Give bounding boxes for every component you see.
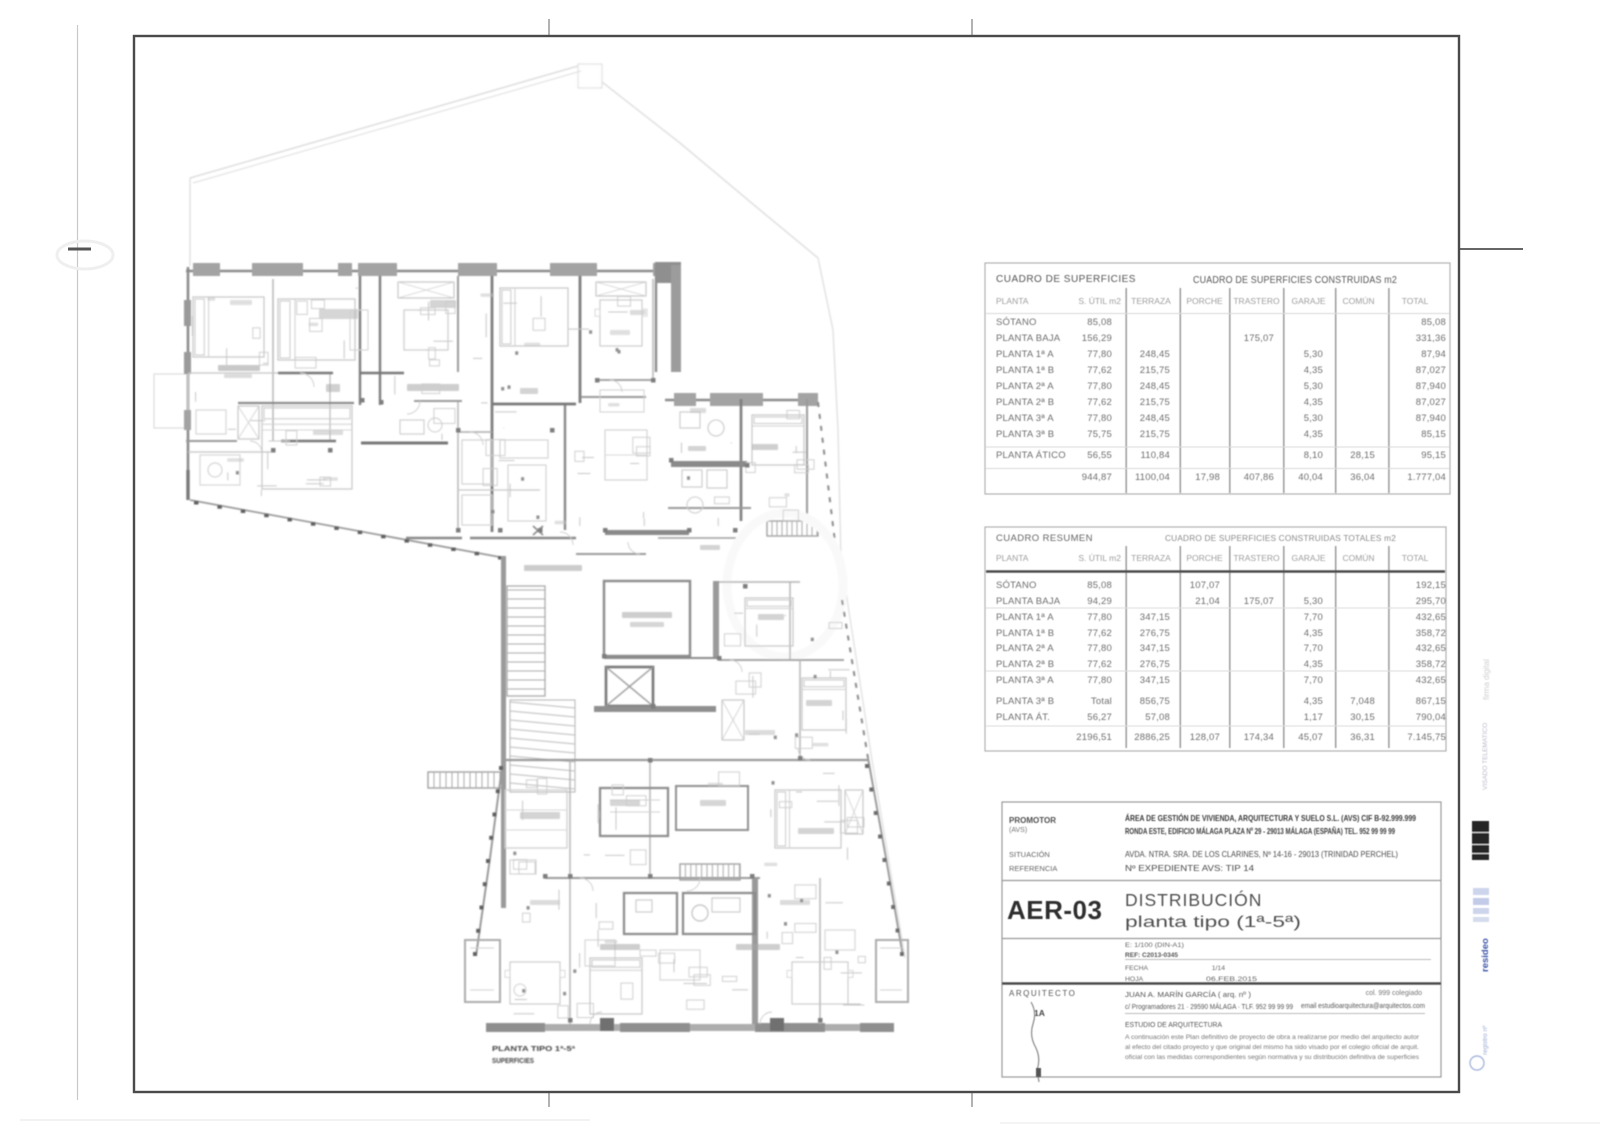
svg-text:ÁREA DE GESTIÓN DE VIVIENDA, A: ÁREA DE GESTIÓN DE VIVIENDA, ARQUITECTUR… xyxy=(1125,812,1416,823)
svg-text:VISADO TELEMATICO: VISADO TELEMATICO xyxy=(1482,723,1489,790)
svg-text:856,75: 856,75 xyxy=(1140,696,1170,707)
svg-text:192,15: 192,15 xyxy=(1416,580,1446,591)
svg-text:PLANTA 2ª A: PLANTA 2ª A xyxy=(996,643,1054,654)
svg-text:347,15: 347,15 xyxy=(1140,612,1170,623)
svg-text:87,940: 87,940 xyxy=(1416,381,1446,392)
svg-text:E: 1/100 (DIN-A1): E: 1/100 (DIN-A1) xyxy=(1125,942,1184,949)
svg-text:358,72: 358,72 xyxy=(1416,628,1446,639)
svg-text:867,15: 867,15 xyxy=(1416,696,1446,707)
svg-text:COMÚN: COMÚN xyxy=(1342,553,1374,563)
svg-text:77,80: 77,80 xyxy=(1087,349,1112,360)
svg-text:TERRAZA: TERRAZA xyxy=(1131,296,1171,306)
svg-text:col. 999 colegiado: col. 999 colegiado xyxy=(1366,990,1423,997)
svg-text:215,75: 215,75 xyxy=(1140,365,1170,376)
svg-text:FECHA: FECHA xyxy=(1125,965,1149,972)
svg-text:PLANTA 2ª A: PLANTA 2ª A xyxy=(996,381,1054,392)
svg-text:Nº EXPEDIENTE AVS: TIP 14: Nº EXPEDIENTE AVS: TIP 14 xyxy=(1125,864,1255,873)
svg-text:248,45: 248,45 xyxy=(1140,381,1170,392)
svg-text:PLANTA TIPO 1ª-5ª: PLANTA TIPO 1ª-5ª xyxy=(492,1044,575,1053)
svg-text:87,027: 87,027 xyxy=(1416,397,1446,408)
svg-text:5,30: 5,30 xyxy=(1304,381,1323,392)
svg-text:SÓTANO: SÓTANO xyxy=(996,317,1037,328)
svg-text:Total: Total xyxy=(1091,696,1112,707)
svg-text:77,80: 77,80 xyxy=(1087,675,1112,686)
svg-text:7,70: 7,70 xyxy=(1304,675,1323,686)
svg-text:REF: C2013-0345: REF: C2013-0345 xyxy=(1125,952,1178,959)
svg-text:87,940: 87,940 xyxy=(1416,413,1446,424)
svg-text:planta tipo (1ª-5ª): planta tipo (1ª-5ª) xyxy=(1125,914,1301,931)
svg-text:40,04: 40,04 xyxy=(1298,472,1323,483)
svg-text:95,15: 95,15 xyxy=(1421,450,1446,461)
svg-text:CUADRO DE SUPERFICIES: CUADRO DE SUPERFICIES xyxy=(996,274,1136,285)
svg-text:87,027: 87,027 xyxy=(1416,365,1446,376)
svg-text:215,75: 215,75 xyxy=(1140,397,1170,408)
svg-text:7,70: 7,70 xyxy=(1304,612,1323,623)
svg-text:77,62: 77,62 xyxy=(1087,397,1112,408)
svg-text:PLANTA ÁT.: PLANTA ÁT. xyxy=(996,712,1050,723)
svg-text:PLANTA BAJA: PLANTA BAJA xyxy=(996,596,1061,607)
svg-text:2886,25: 2886,25 xyxy=(1134,732,1170,743)
svg-text:REFERENCIA: REFERENCIA xyxy=(1009,864,1057,873)
svg-text:PLANTA BAJA: PLANTA BAJA xyxy=(996,333,1061,344)
svg-text:S. ÚTIL m2: S. ÚTIL m2 xyxy=(1078,296,1121,306)
svg-text:57,08: 57,08 xyxy=(1145,712,1170,723)
svg-text:PORCHE: PORCHE xyxy=(1186,553,1223,563)
svg-text:al efecto del citado proyecto: al efecto del citado proyecto y que orig… xyxy=(1125,1044,1419,1051)
svg-text:S. ÚTIL m2: S. ÚTIL m2 xyxy=(1078,553,1121,563)
svg-text:87,94: 87,94 xyxy=(1421,349,1446,360)
svg-text:30,15: 30,15 xyxy=(1350,712,1375,723)
svg-text:(AVS): (AVS) xyxy=(1009,827,1027,834)
svg-text:295,70: 295,70 xyxy=(1416,596,1446,607)
svg-text:215,75: 215,75 xyxy=(1140,429,1170,440)
svg-text:331,36: 331,36 xyxy=(1416,333,1446,344)
svg-text:GARAJE: GARAJE xyxy=(1291,553,1325,563)
svg-text:A continuación este Plan defin: A continuación este Plan definitivo de p… xyxy=(1125,1034,1420,1041)
svg-text:AVDA. NTRA. SRA. DE LOS CLARIN: AVDA. NTRA. SRA. DE LOS CLARINES, Nº 14-… xyxy=(1125,850,1398,859)
svg-text:RONDA ESTE, EDIFICIO MÁLAGA PL: RONDA ESTE, EDIFICIO MÁLAGA PLAZA Nº 29 … xyxy=(1125,826,1395,836)
svg-text:TERRAZA: TERRAZA xyxy=(1131,553,1171,563)
svg-text:PLANTA 1ª B: PLANTA 1ª B xyxy=(996,628,1054,639)
svg-text:175,07: 175,07 xyxy=(1244,596,1274,607)
svg-text:PROMOTOR: PROMOTOR xyxy=(1009,816,1056,825)
svg-text:174,34: 174,34 xyxy=(1244,732,1274,743)
svg-text:1100,04: 1100,04 xyxy=(1135,472,1170,483)
svg-text:944,87: 944,87 xyxy=(1082,472,1112,483)
svg-text:4,35: 4,35 xyxy=(1304,397,1323,408)
svg-text:4,35: 4,35 xyxy=(1304,365,1323,376)
svg-text:5,30: 5,30 xyxy=(1304,596,1323,607)
svg-text:SUPERFICIES: SUPERFICIES xyxy=(492,1058,534,1065)
svg-text:7,70: 7,70 xyxy=(1304,643,1323,654)
svg-text:156,29: 156,29 xyxy=(1082,333,1112,344)
svg-text:PLANTA 2ª B: PLANTA 2ª B xyxy=(996,659,1054,670)
svg-text:128,07: 128,07 xyxy=(1190,732,1220,743)
svg-text:77,80: 77,80 xyxy=(1087,381,1112,392)
svg-text:432,65: 432,65 xyxy=(1416,675,1446,686)
svg-text:248,45: 248,45 xyxy=(1140,413,1170,424)
svg-text:45,07: 45,07 xyxy=(1298,732,1323,743)
svg-text:COMÚN: COMÚN xyxy=(1342,296,1374,306)
svg-text:PLANTA ÁTICO: PLANTA ÁTICO xyxy=(996,450,1066,461)
svg-text:85,08: 85,08 xyxy=(1087,580,1112,591)
svg-text:SITUACIÓN: SITUACIÓN xyxy=(1009,850,1050,859)
svg-text:36,31: 36,31 xyxy=(1350,732,1375,743)
svg-text:1/14: 1/14 xyxy=(1212,965,1225,972)
svg-text:ARQUITECTO: ARQUITECTO xyxy=(1009,989,1076,998)
svg-text:28,15: 28,15 xyxy=(1350,450,1375,461)
svg-text:PLANTA 3ª B: PLANTA 3ª B xyxy=(996,429,1054,440)
svg-text:347,15: 347,15 xyxy=(1140,675,1170,686)
svg-text:248,45: 248,45 xyxy=(1140,349,1170,360)
svg-text:5,30: 5,30 xyxy=(1304,413,1323,424)
svg-text:ESTUDIO DE ARQUITECTURA: ESTUDIO DE ARQUITECTURA xyxy=(1125,1020,1222,1029)
svg-text:email estudioarquitectura@arq: email estudioarquitectura@arquitectos.co… xyxy=(1301,1003,1425,1010)
svg-text:PLANTA 3ª A: PLANTA 3ª A xyxy=(996,413,1054,424)
svg-text:PLANTA 3ª A: PLANTA 3ª A xyxy=(996,675,1054,686)
svg-text:PLANTA 1ª A: PLANTA 1ª A xyxy=(996,349,1054,360)
svg-text:4,35: 4,35 xyxy=(1304,696,1323,707)
svg-text:SÓTANO: SÓTANO xyxy=(996,580,1037,591)
svg-text:77,62: 77,62 xyxy=(1087,628,1112,639)
svg-text:TRASTERO: TRASTERO xyxy=(1233,296,1280,306)
svg-text:TOTAL: TOTAL xyxy=(1402,296,1429,306)
svg-text:PLANTA 3ª B: PLANTA 3ª B xyxy=(996,696,1054,707)
svg-text:PORCHE: PORCHE xyxy=(1186,296,1223,306)
svg-text:432,65: 432,65 xyxy=(1416,643,1446,654)
svg-text:1A: 1A xyxy=(1034,1008,1045,1018)
svg-text:7,048: 7,048 xyxy=(1350,696,1375,707)
svg-text:JUAN A. MARÍN GARCÍA ( arq. n: JUAN A. MARÍN GARCÍA ( arq. nº ) xyxy=(1125,990,1252,999)
svg-text:77,62: 77,62 xyxy=(1087,365,1112,376)
svg-text:85,08: 85,08 xyxy=(1421,317,1446,328)
svg-text:4,35: 4,35 xyxy=(1304,628,1323,639)
svg-text:77,80: 77,80 xyxy=(1087,643,1112,654)
svg-text:276,75: 276,75 xyxy=(1140,628,1170,639)
svg-text:resideo: resideo xyxy=(1480,938,1491,972)
svg-text:GARAJE: GARAJE xyxy=(1291,296,1325,306)
svg-text:8,10: 8,10 xyxy=(1304,450,1323,461)
svg-text:432,65: 432,65 xyxy=(1416,612,1446,623)
svg-text:77,80: 77,80 xyxy=(1087,413,1112,424)
svg-text:107,07: 107,07 xyxy=(1190,580,1220,591)
svg-text:5,30: 5,30 xyxy=(1304,349,1323,360)
svg-text:TOTAL: TOTAL xyxy=(1402,553,1429,563)
svg-text:PLANTA 1ª B: PLANTA 1ª B xyxy=(996,365,1054,376)
svg-text:registro nº: registro nº xyxy=(1482,1025,1489,1055)
svg-text:347,15: 347,15 xyxy=(1140,643,1170,654)
svg-text:4,35: 4,35 xyxy=(1304,659,1323,670)
svg-text:CUADRO DE SUPERFICIES CONSTRUI: CUADRO DE SUPERFICIES CONSTRUIDAS m2 xyxy=(1193,275,1397,286)
svg-text:21,04: 21,04 xyxy=(1195,596,1220,607)
svg-text:276,75: 276,75 xyxy=(1140,659,1170,670)
svg-text:85,08: 85,08 xyxy=(1087,317,1112,328)
svg-text:77,80: 77,80 xyxy=(1087,612,1112,623)
svg-text:94,29: 94,29 xyxy=(1087,596,1112,607)
svg-text:DISTRIBUCIÓN: DISTRIBUCIÓN xyxy=(1125,889,1262,910)
svg-text:CUADRO RESUMEN: CUADRO RESUMEN xyxy=(996,533,1093,544)
svg-text:HOJA: HOJA xyxy=(1125,976,1144,983)
svg-text:1.777,04: 1.777,04 xyxy=(1407,472,1446,483)
svg-text:2196,51: 2196,51 xyxy=(1076,732,1112,743)
svg-text:17,98: 17,98 xyxy=(1195,472,1220,483)
svg-text:PLANTA: PLANTA xyxy=(996,296,1029,306)
svg-text:06.FEB.2015: 06.FEB.2015 xyxy=(1206,976,1257,983)
svg-text:75,75: 75,75 xyxy=(1087,429,1112,440)
svg-text:PLANTA 2ª B: PLANTA 2ª B xyxy=(996,397,1054,408)
svg-text:85,15: 85,15 xyxy=(1421,429,1446,440)
svg-text:56,55: 56,55 xyxy=(1087,450,1112,461)
svg-text:AER-03: AER-03 xyxy=(1007,895,1102,925)
svg-text:firma digital: firma digital xyxy=(1482,659,1491,700)
svg-text:36,04: 36,04 xyxy=(1350,472,1375,483)
svg-text:407,86: 407,86 xyxy=(1244,472,1274,483)
svg-text:PLANTA: PLANTA xyxy=(996,553,1029,563)
svg-text:358,72: 358,72 xyxy=(1416,659,1446,670)
svg-text:PLANTA 1ª A: PLANTA 1ª A xyxy=(996,612,1054,623)
svg-text:1,17: 1,17 xyxy=(1304,712,1323,723)
svg-text:110,84: 110,84 xyxy=(1140,450,1170,461)
svg-text:7.145,75: 7.145,75 xyxy=(1407,732,1446,743)
svg-text:56,27: 56,27 xyxy=(1087,712,1112,723)
svg-text:77,62: 77,62 xyxy=(1087,659,1112,670)
svg-text:c/ Programadores 21 · 29590: c/ Programadores 21 · 29590 MÁLAGA · TLF… xyxy=(1125,1002,1293,1011)
svg-text:TRASTERO: TRASTERO xyxy=(1233,553,1280,563)
svg-text:oficial con las medidas corres: oficial con las medidas correspondientes… xyxy=(1125,1054,1420,1061)
svg-text:CUADRO DE SUPERFICIES CONSTRUI: CUADRO DE SUPERFICIES CONSTRUIDAS TOTALE… xyxy=(1165,533,1396,543)
svg-text:4,35: 4,35 xyxy=(1304,429,1323,440)
svg-text:175,07: 175,07 xyxy=(1244,333,1274,344)
svg-text:790,04: 790,04 xyxy=(1416,712,1446,723)
